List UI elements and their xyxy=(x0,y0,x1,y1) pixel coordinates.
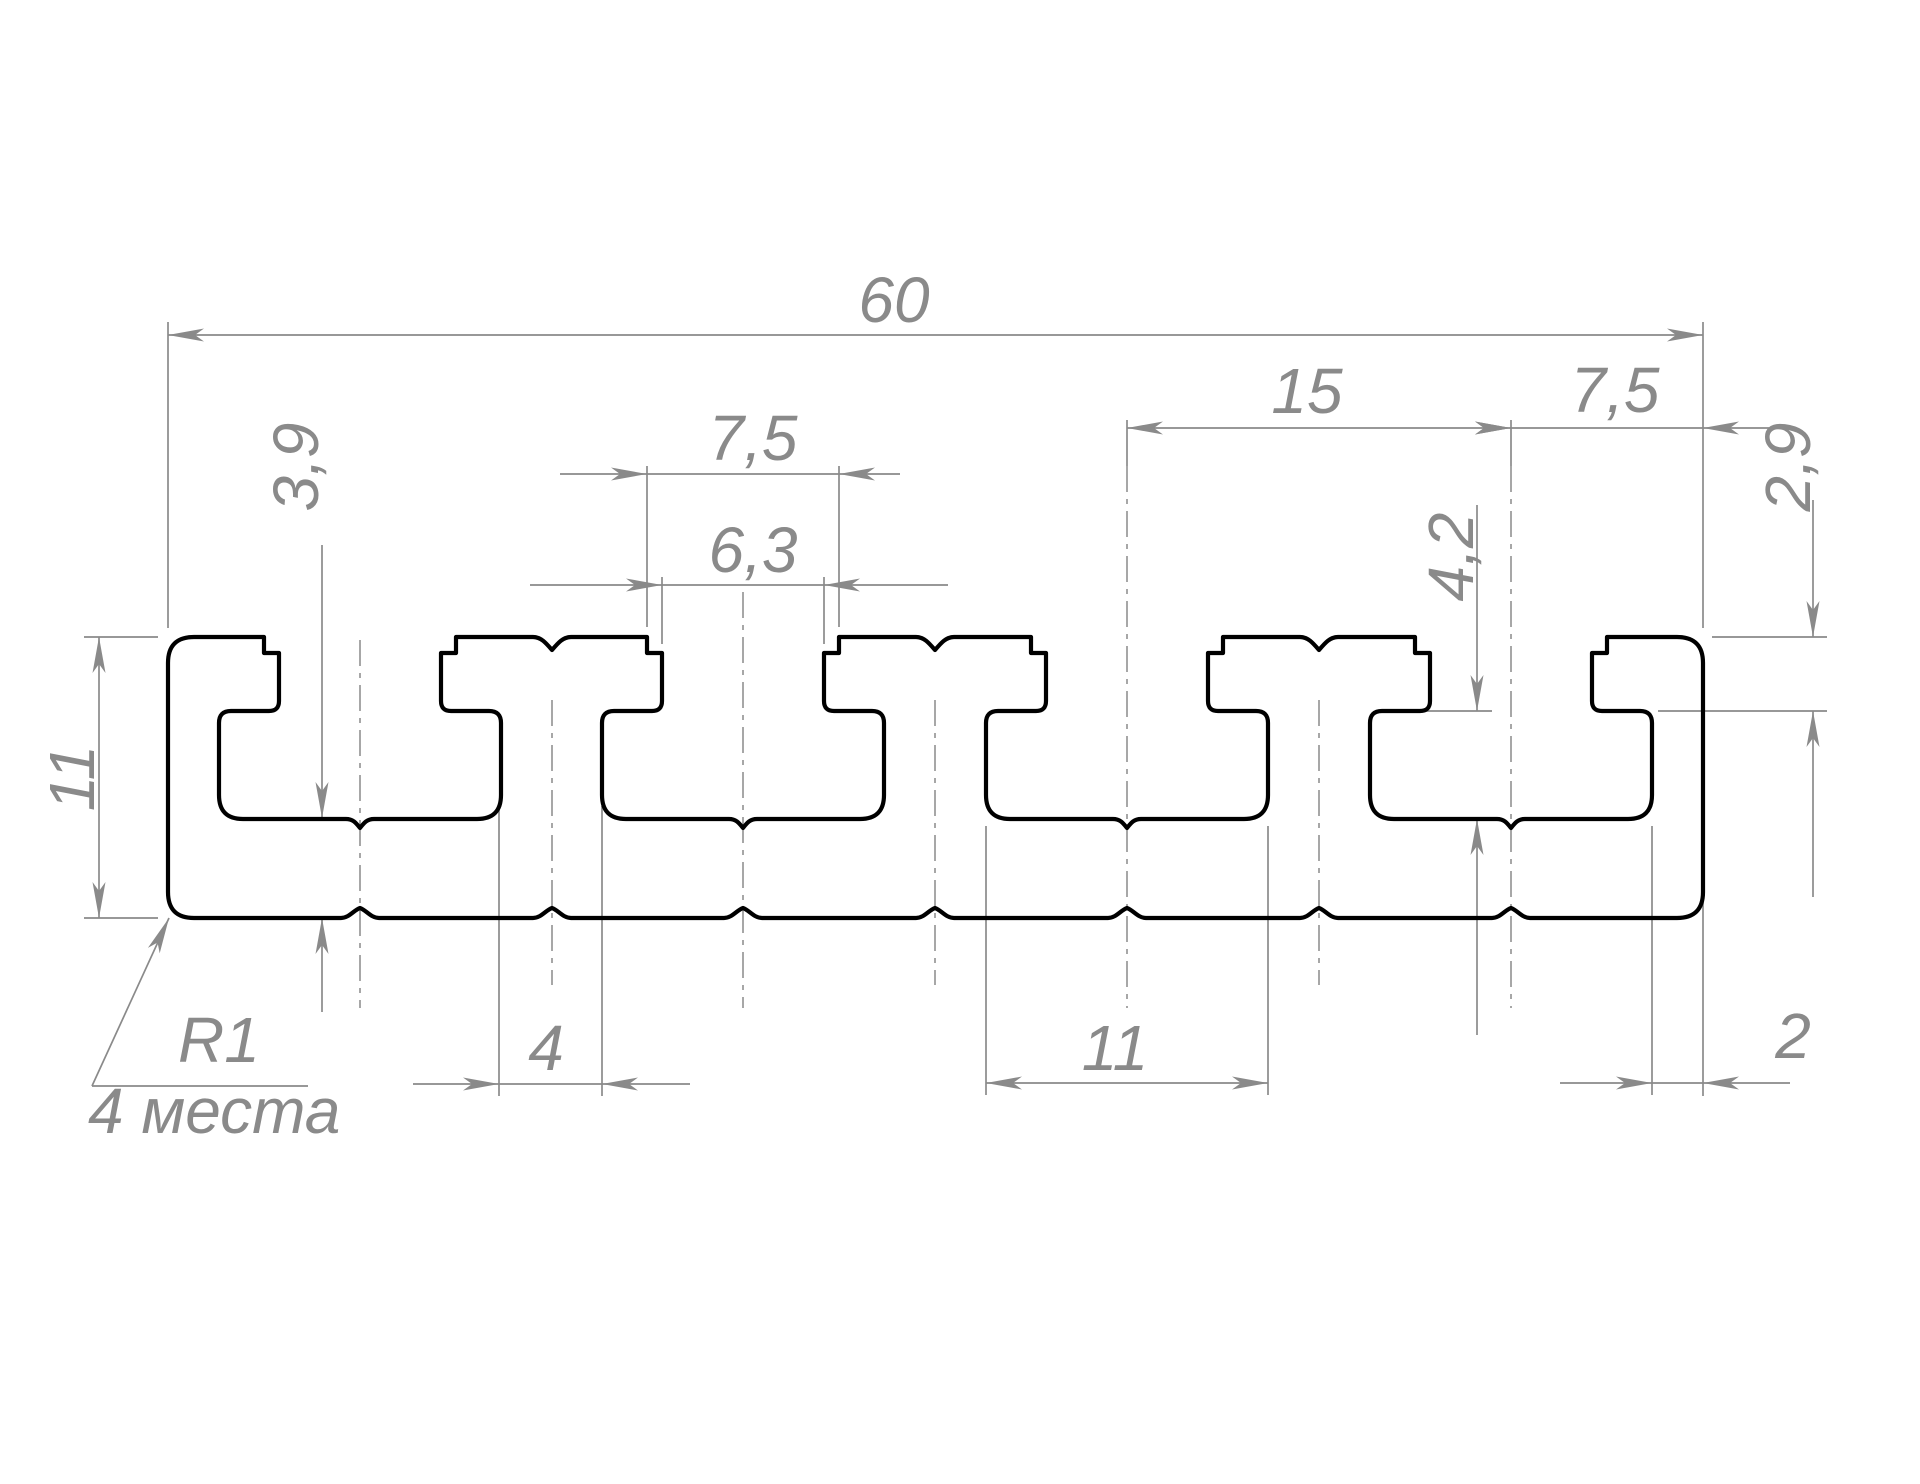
dim-slot-top-opening-label: 7,5 xyxy=(709,402,798,474)
dim-edge-to-slot-label: 7,5 xyxy=(1571,354,1660,426)
dimension-neck-depth: 2,9 xyxy=(1658,423,1827,897)
dim-web-width-label: 4 xyxy=(528,1012,564,1084)
dimension-total-height: 11 xyxy=(36,637,158,918)
dim-slot-lip-opening-label: 6,3 xyxy=(709,514,798,586)
profile-technical-drawing: 60157,57,56,33,92,94,2114112R14 места xyxy=(0,0,1920,1484)
note-r1-leader-0 xyxy=(92,918,169,1086)
dim-cavity-depth-label: 4,2 xyxy=(1415,513,1487,602)
note-r1-label: R1 xyxy=(178,1004,260,1076)
dimension-edge-to-slot: 7,5 xyxy=(1511,354,1788,428)
dim-neck-depth-label: 2,9 xyxy=(1752,423,1824,513)
dim-slot-pitch-label: 15 xyxy=(1271,355,1343,427)
drawing-canvas: 60157,57,56,33,92,94,2114112R14 места xyxy=(0,0,1920,1484)
dimension-edge-wall: 2 xyxy=(1560,826,1811,1095)
dim-cavity-width-label: 11 xyxy=(1082,1012,1148,1084)
dim-floor-thickness-label: 3,9 xyxy=(260,423,332,512)
dimension-cavity-depth: 4,2 xyxy=(1415,505,1492,1035)
dim-total-width-label: 60 xyxy=(858,264,930,336)
dim-edge-wall-label: 2 xyxy=(1774,1000,1811,1072)
note-corner-radius: R14 места xyxy=(88,918,340,1147)
dimension-slot-lip-opening: 6,3 xyxy=(530,514,948,644)
note-r1-arrow xyxy=(148,915,175,953)
dimension-cavity-width: 11 xyxy=(986,826,1268,1095)
dim-total-height-label: 11 xyxy=(36,745,108,811)
dimension-slot-pitch: 15 xyxy=(1127,355,1511,466)
note-r1-places-label: 4 места xyxy=(88,1075,340,1147)
